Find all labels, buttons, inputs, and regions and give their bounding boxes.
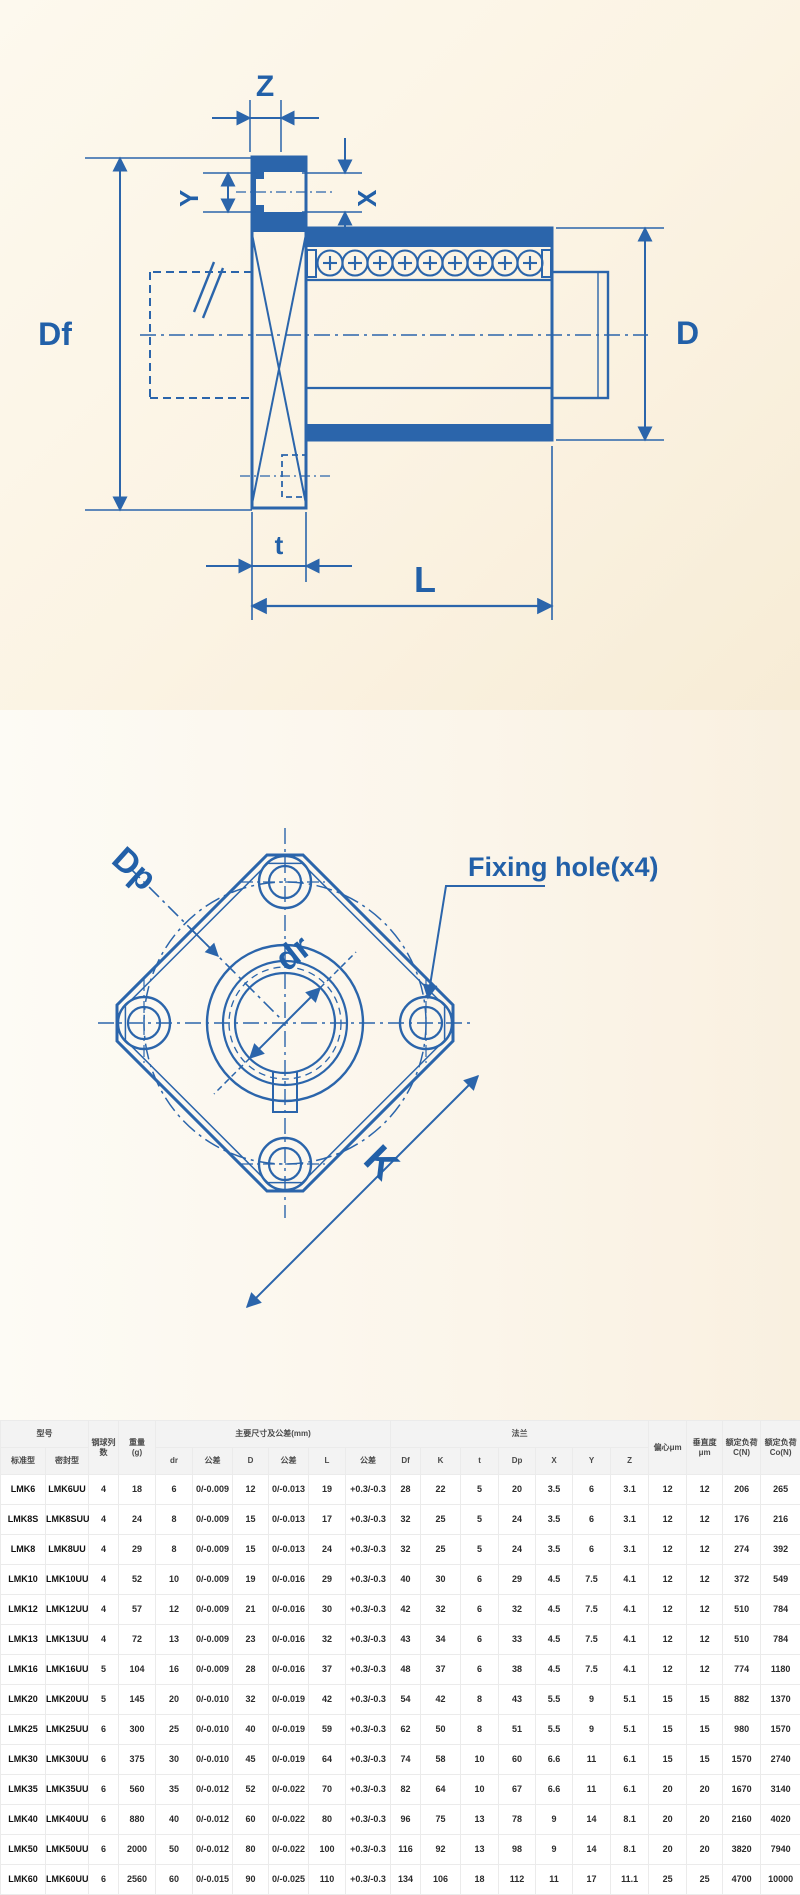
cell-value: 20 [687,1775,723,1805]
label-dr: dr [268,928,318,979]
subheader-t: t [461,1448,499,1475]
cell-value: 560 [119,1775,156,1805]
cell-value: +0.3/-0.3 [346,1805,391,1835]
cell-model-standard: LMK35 [1,1775,46,1805]
cell-value: 0/-0.009 [193,1475,233,1505]
cell-value: 0/-0.012 [193,1775,233,1805]
table-row: LMK30LMK30UU6375300/-0.010450/-0.01964+0… [1,1745,800,1775]
cell-value: 57 [119,1595,156,1625]
cell-value: 3140 [761,1775,800,1805]
cell-value: 4 [89,1565,119,1595]
cell-value: 4700 [723,1865,761,1895]
cell-value: 8.1 [611,1835,649,1865]
cell-value: 1370 [761,1685,800,1715]
header-load-c-l2: C(N) [733,1448,750,1457]
table-row: LMK16LMK16UU5104160/-0.009280/-0.01637+0… [1,1655,800,1685]
cell-value: 6 [573,1475,611,1505]
subheader-D-tol: 公差 [269,1448,309,1475]
cell-value: 25 [649,1865,687,1895]
cell-value: 12 [687,1565,723,1595]
cell-value: 0/-0.009 [193,1595,233,1625]
header-perpendicularity: 垂直度μm [687,1421,723,1475]
cell-value: 4.1 [611,1565,649,1595]
subheader-Dp: Dp [499,1448,536,1475]
cell-value: 17 [309,1505,346,1535]
cell-value: 3.1 [611,1535,649,1565]
subheader-Df: Df [391,1448,421,1475]
cell-value: 32 [421,1595,461,1625]
cell-value: 30 [421,1565,461,1595]
cell-value: 176 [723,1505,761,1535]
cell-value: 15 [233,1535,269,1565]
cell-value: 96 [391,1805,421,1835]
subheader-L: L [309,1448,346,1475]
cell-value: 0/-0.013 [269,1535,309,1565]
cell-value: 5 [89,1685,119,1715]
cell-value: 72 [119,1625,156,1655]
header-flange-group: 法兰 [391,1421,649,1448]
cell-value: 29 [499,1565,536,1595]
cell-value: 4.5 [536,1655,573,1685]
cell-value: 20 [499,1475,536,1505]
cell-value: 42 [421,1685,461,1715]
cell-value: 110 [309,1865,346,1895]
cell-value: 216 [761,1505,800,1535]
cell-value: 0/-0.009 [193,1655,233,1685]
cell-value: 25 [687,1865,723,1895]
header-eccentricity: 偏心μm [649,1421,687,1475]
cell-value: 17 [573,1865,611,1895]
cell-value: 116 [391,1835,421,1865]
cell-value: 5.1 [611,1685,649,1715]
cell-value: 13 [156,1625,193,1655]
cell-value: 15 [233,1505,269,1535]
cell-value: 3820 [723,1835,761,1865]
cell-value: +0.3/-0.3 [346,1685,391,1715]
cell-value: 0/-0.009 [193,1565,233,1595]
cell-value: 4.5 [536,1625,573,1655]
cell-value: 5.1 [611,1715,649,1745]
cell-value: 12 [687,1475,723,1505]
cell-value: 4.1 [611,1625,649,1655]
subheader-L-tol: 公差 [346,1448,391,1475]
cell-value: 0/-0.010 [193,1685,233,1715]
cell-value: 392 [761,1535,800,1565]
cell-value: 3.1 [611,1475,649,1505]
cell-value: 20 [649,1835,687,1865]
cross-section-drawing: Z Y X Df D [0,0,800,710]
cell-value: 882 [723,1685,761,1715]
cell-value: 60 [499,1745,536,1775]
cell-model-sealed: LMK12UU [46,1595,89,1625]
cell-value: 37 [421,1655,461,1685]
cell-value: 25 [421,1535,461,1565]
cell-value: 1670 [723,1775,761,1805]
table-row: LMK35LMK35UU6560350/-0.012520/-0.02270+0… [1,1775,800,1805]
cell-value: +0.3/-0.3 [346,1535,391,1565]
cell-value: 32 [391,1535,421,1565]
cell-value: 2160 [723,1805,761,1835]
cell-value: 375 [119,1745,156,1775]
table-row: LMK40LMK40UU6880400/-0.012600/-0.02280+0… [1,1805,800,1835]
cell-value: 274 [723,1535,761,1565]
shaft-break-mark [194,262,214,312]
cell-value: +0.3/-0.3 [346,1715,391,1745]
cell-value: 62 [391,1715,421,1745]
table-row: LMK8LMK8UU42980/-0.009150/-0.01324+0.3/-… [1,1535,800,1565]
cell-value: 10000 [761,1865,800,1895]
cell-value: 20 [649,1775,687,1805]
subheader-sealed-type: 密封型 [46,1448,89,1475]
cell-value: 0/-0.022 [269,1835,309,1865]
subheader-D: D [233,1448,269,1475]
cell-value: 4.1 [611,1655,649,1685]
cell-model-sealed: LMK35UU [46,1775,89,1805]
cell-value: +0.3/-0.3 [346,1835,391,1865]
front-view-drawing: dr Dp K Fixing hole(x4) [0,710,800,1420]
cell-value: 7940 [761,1835,800,1865]
cell-value: 20 [687,1805,723,1835]
cell-value: 15 [687,1685,723,1715]
cell-value: 12 [233,1475,269,1505]
cell-value: 92 [421,1835,461,1865]
shaft-break-mark [203,268,223,318]
cell-value: 24 [499,1505,536,1535]
cell-value: 15 [687,1715,723,1745]
cell-value: 12 [649,1655,687,1685]
cell-value: 6 [89,1745,119,1775]
spec-table-panel: 型号 钢球列数 重量(g) 主要尺寸及公差(mm) 法兰 偏心μm 垂直度μm … [0,1420,800,1895]
table-row: LMK25LMK25UU6300250/-0.010400/-0.01959+0… [1,1715,800,1745]
cell-value: 5 [89,1655,119,1685]
cell-value: 6 [89,1805,119,1835]
cell-value: 1570 [761,1715,800,1745]
cell-value: 5.5 [536,1685,573,1715]
fixing-hole-callout: Fixing hole(x4) [428,852,659,998]
cell-value: 3.1 [611,1505,649,1535]
cell-model-standard: LMK8S [1,1505,46,1535]
cell-value: 13 [461,1805,499,1835]
cell-value: 24 [119,1505,156,1535]
cell-value: 6 [89,1775,119,1805]
cell-value: 32 [391,1505,421,1535]
cell-value: 12 [649,1625,687,1655]
table-row: LMK6LMK6UU41860/-0.009120/-0.01319+0.3/-… [1,1475,800,1505]
cell-value: 20 [687,1835,723,1865]
cell-value: 42 [391,1595,421,1625]
cell-value: 6 [461,1595,499,1625]
cell-value: 8 [461,1685,499,1715]
cell-value: 35 [156,1775,193,1805]
cell-value: 5 [461,1475,499,1505]
dim-t: t [206,512,352,620]
table-row: LMK10LMK10UU452100/-0.009190/-0.01629+0.… [1,1565,800,1595]
cell-value: 4020 [761,1805,800,1835]
cell-value: 4.5 [536,1595,573,1625]
cell-value: 104 [119,1655,156,1685]
cell-value: 6 [461,1625,499,1655]
cell-model-sealed: LMK50UU [46,1835,89,1865]
cell-model-standard: LMK12 [1,1595,46,1625]
cell-value: +0.3/-0.3 [346,1475,391,1505]
cell-value: 50 [421,1715,461,1745]
cell-value: 112 [499,1865,536,1895]
cell-value: 1180 [761,1655,800,1685]
cell-value: 51 [499,1715,536,1745]
cell-value: 6 [89,1835,119,1865]
label-t: t [275,530,284,560]
header-weight-l1: 重量 [129,1438,145,1447]
cell-value: 0/-0.016 [269,1655,309,1685]
cell-value: 0/-0.013 [269,1475,309,1505]
cell-model-standard: LMK13 [1,1625,46,1655]
cell-value: 19 [309,1475,346,1505]
cell-value: 0/-0.022 [269,1805,309,1835]
cell-value: 7.5 [573,1655,611,1685]
cell-value: 32 [233,1685,269,1715]
cell-value: 12 [687,1625,723,1655]
cell-value: 75 [421,1805,461,1835]
cell-value: 8 [156,1535,193,1565]
header-load-co-l1: 额定负荷 [765,1438,797,1447]
cell-value: 784 [761,1595,800,1625]
section-drawing-panel: Z Y X Df D [0,0,800,710]
cell-value: 4 [89,1535,119,1565]
cell-value: 12 [687,1535,723,1565]
cell-value: 12 [649,1505,687,1535]
cell-value: 2740 [761,1745,800,1775]
table-row: LMK12LMK12UU457120/-0.009210/-0.01630+0.… [1,1595,800,1625]
cell-value: 9 [536,1805,573,1835]
cell-value: 7.5 [573,1595,611,1625]
subheader-Y: Y [573,1448,611,1475]
cell-model-standard: LMK8 [1,1535,46,1565]
cell-value: 18 [461,1865,499,1895]
table-row: LMK13LMK13UU472130/-0.009230/-0.01632+0.… [1,1625,800,1655]
cell-model-sealed: LMK8UU [46,1535,89,1565]
cell-value: 206 [723,1475,761,1505]
cell-value: 74 [391,1745,421,1775]
cell-model-standard: LMK10 [1,1565,46,1595]
cell-value: 6 [89,1865,119,1895]
cell-value: 0/-0.019 [269,1715,309,1745]
header-model-group: 型号 [1,1421,89,1448]
cell-value: 21 [233,1595,269,1625]
cell-value: +0.3/-0.3 [346,1625,391,1655]
header-weight-l2: (g) [132,1448,142,1457]
label-K: K [355,1137,407,1189]
cell-value: 100 [309,1835,346,1865]
cell-value: 1570 [723,1745,761,1775]
cell-value: 4 [89,1475,119,1505]
subheader-Z: Z [611,1448,649,1475]
cell-value: 98 [499,1835,536,1865]
cell-value: 10 [461,1775,499,1805]
cell-value: 0/-0.016 [269,1625,309,1655]
cell-value: 11 [536,1865,573,1895]
cell-model-standard: LMK20 [1,1685,46,1715]
cell-value: 54 [391,1685,421,1715]
cell-model-standard: LMK16 [1,1655,46,1685]
flange-section [236,157,334,508]
subheader-standard-type: 标准型 [1,1448,46,1475]
cell-value: 0/-0.019 [269,1685,309,1715]
cell-value: 2560 [119,1865,156,1895]
cell-value: 40 [391,1565,421,1595]
cell-value: 40 [156,1805,193,1835]
cell-value: 45 [233,1745,269,1775]
cell-value: 30 [156,1745,193,1775]
cell-value: 43 [499,1685,536,1715]
label-X: X [352,189,382,207]
cell-value: 6 [573,1505,611,1535]
subheader-dr-tol: 公差 [193,1448,233,1475]
dim-Z: Z [212,70,319,152]
cell-value: 0/-0.016 [269,1595,309,1625]
cell-value: 37 [309,1655,346,1685]
cell-value: 0/-0.015 [193,1865,233,1895]
cell-value: 134 [391,1865,421,1895]
cell-value: 0/-0.009 [193,1505,233,1535]
cell-value: 4 [89,1505,119,1535]
cell-value: 12 [687,1505,723,1535]
cell-value: 4 [89,1625,119,1655]
cell-value: 29 [309,1565,346,1595]
cell-value: 3.5 [536,1505,573,1535]
cell-value: 78 [499,1805,536,1835]
cell-value: 29 [119,1535,156,1565]
cell-value: 80 [233,1835,269,1865]
cell-value: 10 [156,1565,193,1595]
cell-value: 4.5 [536,1565,573,1595]
cell-model-sealed: LMK40UU [46,1805,89,1835]
cell-value: 25 [421,1505,461,1535]
header-load-co-l2: Co(N) [770,1448,792,1457]
cell-value: 6 [461,1565,499,1595]
cell-value: 880 [119,1805,156,1835]
header-load-co: 额定负荷Co(N) [761,1421,800,1475]
cell-model-standard: LMK30 [1,1745,46,1775]
cell-value: 0/-0.012 [193,1805,233,1835]
cell-value: 8 [156,1505,193,1535]
cell-value: 80 [309,1805,346,1835]
cell-model-sealed: LMK25UU [46,1715,89,1745]
table-row: LMK60LMK60UU62560600/-0.015900/-0.025110… [1,1865,800,1895]
cell-value: 11 [573,1745,611,1775]
table-row: LMK8SLMK8SUU42480/-0.009150/-0.01317+0.3… [1,1505,800,1535]
cell-value: 40 [233,1715,269,1745]
cell-value: 90 [233,1865,269,1895]
front-view-panel: dr Dp K Fixing hole(x4) [0,710,800,1420]
cell-value: 0/-0.022 [269,1775,309,1805]
cell-value: 60 [156,1865,193,1895]
cell-value: 14 [573,1835,611,1865]
cell-value: 14 [573,1805,611,1835]
cell-value: 0/-0.012 [193,1835,233,1865]
cell-value: 70 [309,1775,346,1805]
cell-value: 12 [649,1475,687,1505]
cell-value: 4 [89,1595,119,1625]
cell-value: 6 [89,1715,119,1745]
cell-value: +0.3/-0.3 [346,1505,391,1535]
cell-value: 50 [156,1835,193,1865]
cell-value: 9 [536,1835,573,1865]
cell-model-standard: LMK6 [1,1475,46,1505]
cell-value: +0.3/-0.3 [346,1565,391,1595]
cell-value: 0/-0.010 [193,1715,233,1745]
header-load-c-l1: 额定负荷 [726,1438,758,1447]
label-Z: Z [256,70,274,103]
cell-model-sealed: LMK8SUU [46,1505,89,1535]
cell-model-standard: LMK40 [1,1805,46,1835]
header-perp-l1: 垂直度 [693,1438,717,1447]
cell-value: 15 [649,1685,687,1715]
cell-value: 5 [461,1505,499,1535]
cell-value: 24 [309,1535,346,1565]
cell-model-sealed: LMK6UU [46,1475,89,1505]
subheader-X: X [536,1448,573,1475]
header-load-c: 额定负荷C(N) [723,1421,761,1475]
cell-value: 0/-0.016 [269,1565,309,1595]
cell-value: 12 [649,1565,687,1595]
cell-value: 0/-0.009 [193,1535,233,1565]
cell-value: 48 [391,1655,421,1685]
cell-value: 372 [723,1565,761,1595]
cell-value: 15 [687,1745,723,1775]
cell-value: 8.1 [611,1805,649,1835]
cell-value: 980 [723,1715,761,1745]
cell-value: +0.3/-0.3 [346,1865,391,1895]
header-ball-rows: 钢球列数 [89,1421,119,1475]
cell-value: 33 [499,1625,536,1655]
cell-model-standard: LMK60 [1,1865,46,1895]
cell-value: 6 [156,1475,193,1505]
cell-value: 32 [309,1625,346,1655]
dim-L: L [252,446,552,620]
cell-value: 0/-0.009 [193,1625,233,1655]
header-perp-l2: μm [699,1448,711,1457]
cell-value: 28 [391,1475,421,1505]
cell-value: 15 [649,1715,687,1745]
cell-value: 145 [119,1685,156,1715]
cell-value: 60 [233,1805,269,1835]
cell-model-standard: LMK25 [1,1715,46,1745]
cell-value: 0/-0.019 [269,1745,309,1775]
cell-value: 52 [119,1565,156,1595]
cell-value: 64 [309,1745,346,1775]
cell-value: 24 [499,1535,536,1565]
cell-value: 300 [119,1715,156,1745]
spec-table-header: 型号 钢球列数 重量(g) 主要尺寸及公差(mm) 法兰 偏心μm 垂直度μm … [1,1421,800,1475]
header-weight: 重量(g) [119,1421,156,1475]
cell-value: 12 [649,1535,687,1565]
cell-value: 11.1 [611,1865,649,1895]
label-Dp: Dp [105,840,164,899]
cell-value: 549 [761,1565,800,1595]
cell-value: 510 [723,1625,761,1655]
cell-value: 23 [233,1625,269,1655]
label-fixing-hole: Fixing hole(x4) [468,852,659,882]
cell-value: 774 [723,1655,761,1685]
cell-value: 6 [461,1655,499,1685]
cell-value: 43 [391,1625,421,1655]
cell-value: 510 [723,1595,761,1625]
cell-value: 0/-0.010 [193,1745,233,1775]
cell-value: 6.1 [611,1745,649,1775]
cell-value: 2000 [119,1835,156,1865]
cell-value: 38 [499,1655,536,1685]
cell-value: 9 [573,1685,611,1715]
